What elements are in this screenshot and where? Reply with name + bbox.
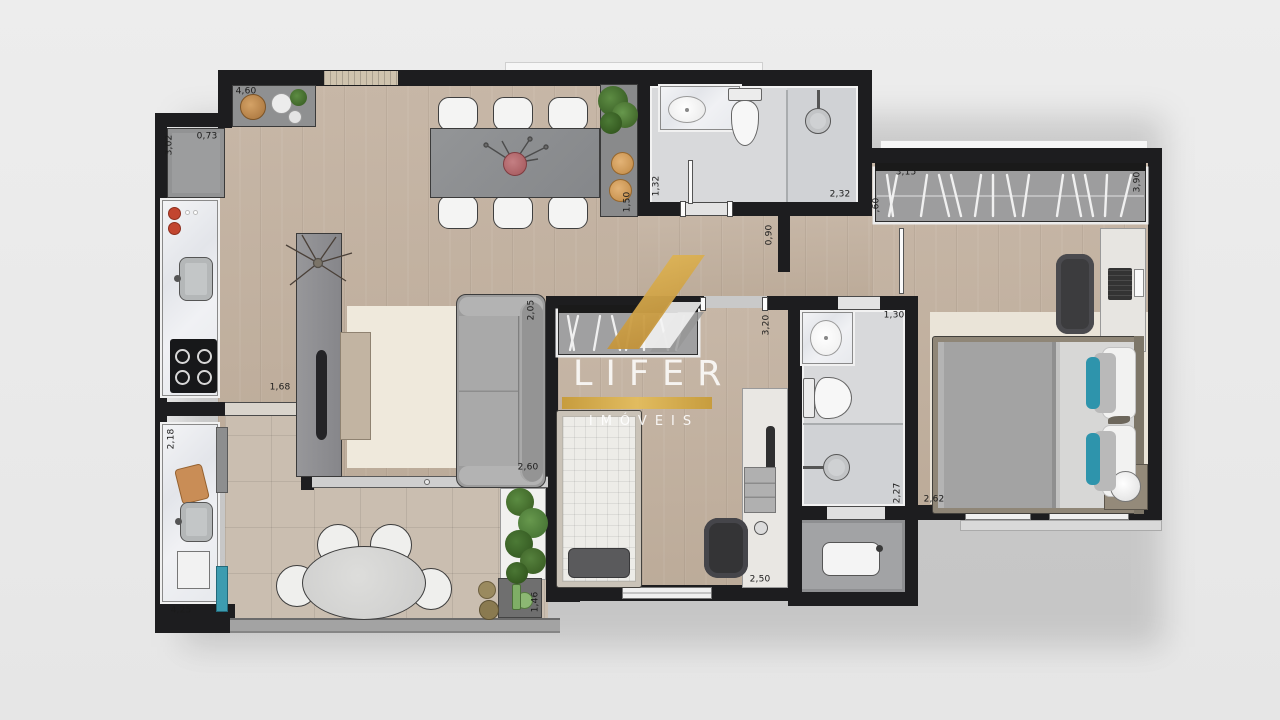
dim-bedroom2-width: 2,50: [750, 576, 771, 585]
kitchen-balcony-door-threshold: [225, 402, 303, 416]
dim-bedroom2-depth: 3,20: [763, 315, 772, 336]
garden-pot-2: [479, 600, 499, 620]
console-branch-decor: [282, 233, 354, 291]
bedroom2-drawers: [744, 467, 776, 513]
cooktop-burner-3: [175, 370, 190, 385]
dim-corridor-door: 0,90: [766, 225, 775, 246]
sofa-backrest: [520, 302, 543, 482]
laundry-door-threshold: [827, 506, 885, 520]
pillow-teal-1: [1086, 357, 1100, 409]
master-notepad: [1134, 269, 1144, 297]
laundry-top-wall-a: [790, 506, 827, 520]
cooktop-burner-4: [197, 370, 212, 385]
garden-plant-5: [506, 562, 528, 584]
dining-chair-1: [438, 97, 478, 131]
bathroom2-shower-floor: [804, 424, 903, 504]
cooktop: [170, 339, 217, 393]
balcony-faucet: [175, 518, 182, 525]
garden-pot-1: [478, 581, 496, 599]
decor-plate-large: [271, 93, 292, 114]
kitchen-sink: [179, 257, 213, 301]
bathroom1-left-wall: [637, 70, 650, 216]
kitchen-balcony-wall: [155, 402, 225, 416]
stove-dot-1: [185, 210, 190, 215]
bedroom2-window: [622, 587, 712, 599]
bathroom1-right-wall: [858, 70, 872, 216]
dim-bath1-depth: 1,32: [653, 176, 662, 197]
balcony-table: [302, 546, 426, 620]
pouf-1: [611, 152, 634, 175]
bathroom2-door-threshold: [838, 296, 880, 310]
watermark-logo: LIFER IMÓVEIS: [560, 250, 720, 445]
master-top-wall: [858, 148, 1162, 163]
bath1-sink-drain: [685, 108, 689, 112]
bathroom1-door-jamb-right: [727, 201, 733, 217]
centerpiece-bowl: [503, 152, 527, 176]
dining-chair-4: [438, 195, 478, 229]
watering-can: [512, 584, 521, 610]
top-wall: [218, 70, 872, 86]
balcony-teal-bench: [216, 566, 228, 612]
tv-screen: [316, 350, 327, 440]
stove-dot-2: [193, 210, 198, 215]
pillow-teal-2: [1086, 433, 1100, 485]
dim-kitchen-top: 4,60: [236, 88, 257, 97]
stove-burner-red-1: [168, 207, 181, 220]
dim-bath2-width: 1,30: [884, 312, 905, 321]
balcony-railing: [230, 618, 560, 633]
laundry-tub: [822, 542, 880, 576]
bath2-shower-arm: [803, 466, 825, 469]
bath2-shower-glass: [803, 423, 903, 425]
corridor-stub-wall: [778, 216, 790, 272]
slider-handle: [424, 479, 430, 485]
dim-bath2-shower: 2,27: [894, 483, 903, 504]
ottoman: [340, 332, 371, 440]
decor-plate-small: [288, 110, 302, 124]
corridor-bottom-wall-b: [767, 296, 790, 310]
double-bed-blanket: [938, 342, 1056, 508]
right-wall: [1148, 148, 1162, 520]
bath2-shower-head: [823, 454, 850, 481]
laundry-bottom-wall: [788, 592, 918, 606]
bed-leaf-decor: [1108, 416, 1130, 424]
entry-mat: [324, 71, 398, 85]
floorplan-canvas: 4,60 0,73 3,02 1,68 2,18 4,25 1,46 1,50 …: [0, 0, 1280, 720]
dining-chair-5: [493, 195, 533, 229]
dim-master-window: 2,62: [924, 496, 945, 505]
bathroom1-door-jamb-left: [680, 201, 686, 217]
bathroom2-right-wall: [905, 296, 918, 606]
decor-bowl: [240, 94, 266, 120]
bedroom2-office-chair: [704, 518, 748, 578]
bathroom2-left-wall: [788, 296, 802, 606]
bathroom1-door-threshold: [685, 202, 728, 216]
dim-master-depth: 3,90: [1134, 172, 1143, 193]
dining-chair-6: [548, 195, 588, 229]
single-bed-pillow: [568, 548, 630, 578]
sideboard-plant-3: [600, 112, 622, 134]
dim-garden: 1,46: [532, 592, 541, 613]
cooktop-burner-1: [175, 349, 190, 364]
master-laptop: [1108, 268, 1132, 300]
balcony-appliance: [177, 551, 210, 589]
dim-wardrobe-depth: ,60: [873, 198, 882, 213]
sofa-seat: [459, 316, 519, 466]
dim-bath1-width: 2,32: [830, 191, 851, 200]
bedroom2-desk-lamp: [754, 521, 768, 535]
dim-hall-width: 1,50: [624, 192, 633, 213]
dim-balcony-counter: 2,18: [168, 429, 177, 450]
dim-balcony-door: 1,68: [270, 384, 291, 393]
master-bottom-sill: [960, 520, 1162, 531]
dim-cabinet: 0,73: [197, 133, 218, 142]
dim-balcony-length: 4,25: [171, 607, 192, 616]
bathroom1-door-leaf: [688, 160, 693, 204]
kitchen-faucet: [174, 275, 181, 282]
bathroom1-shower-floor: [787, 88, 856, 202]
dining-chair-2: [493, 97, 533, 131]
master-hangers: [877, 171, 1144, 220]
watermark-gold-bar: [562, 397, 712, 409]
dining-chair-3: [548, 97, 588, 131]
watermark-brand: LIFER: [560, 354, 720, 394]
laundry-faucet: [876, 545, 883, 552]
cooktop-burner-2: [197, 349, 212, 364]
stove-burner-red-2: [168, 222, 181, 235]
laundry-top-wall-b: [885, 506, 918, 520]
dim-kitchen-left: 3,02: [166, 135, 175, 156]
dim-wardrobe-length: 3,15: [896, 169, 917, 178]
balcony-counter-panel: [216, 427, 228, 493]
counter-plant: [290, 89, 307, 106]
watermark-subtitle: IMÓVEIS: [560, 414, 720, 429]
dim-sofa-length: 2,60: [518, 464, 539, 473]
master-door-leaf: [899, 228, 904, 294]
bath1-shower-head: [805, 108, 831, 134]
bathroom1-bottom-wall-b: [728, 202, 872, 216]
dim-sofa-depth: 2,05: [528, 300, 537, 321]
bath2-sink-drain: [824, 336, 828, 340]
bedroom2-door-jamb-right: [762, 297, 768, 311]
bath1-shower-glass: [786, 90, 788, 202]
master-desk-chair: [1056, 254, 1094, 334]
balcony-sink: [180, 502, 213, 542]
bathroom1-bottom-wall-a: [637, 202, 685, 216]
